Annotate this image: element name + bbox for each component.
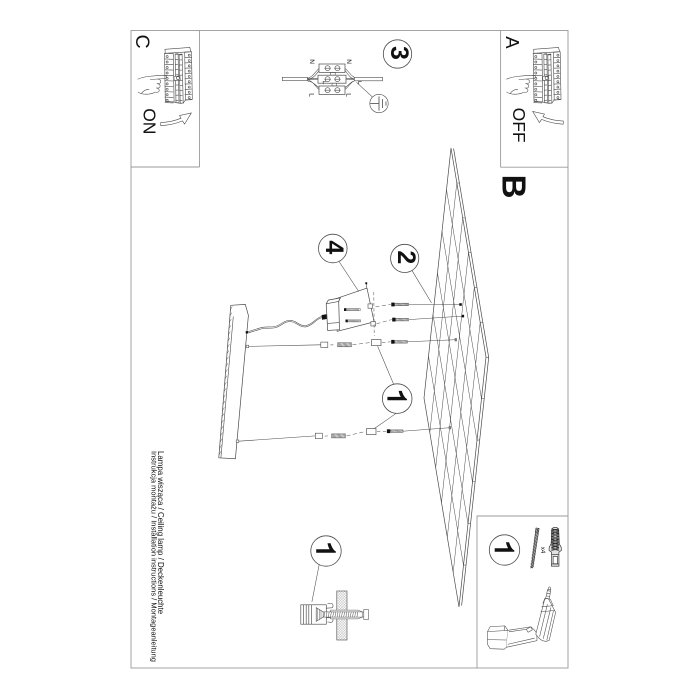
svg-text:3: 3 — [385, 46, 413, 60]
svg-text:4: 4 — [320, 240, 348, 254]
svg-text:A: A — [502, 36, 523, 49]
svg-text:x4: x4 — [539, 547, 546, 554]
svg-text:B: B — [496, 175, 533, 199]
svg-text:Lampa wisząca / Ceiling lamp /: Lampa wisząca / Ceiling lamp / Deckenleu… — [156, 451, 165, 615]
svg-text:L: L — [308, 93, 315, 97]
svg-text:L: L — [345, 93, 352, 97]
svg-text:2: 2 — [392, 250, 420, 264]
svg-text:OFF: OFF — [509, 108, 529, 143]
svg-text:N: N — [345, 59, 352, 64]
svg-text:N: N — [308, 59, 315, 64]
svg-text:ON: ON — [140, 108, 160, 134]
svg-text:C: C — [131, 35, 153, 49]
